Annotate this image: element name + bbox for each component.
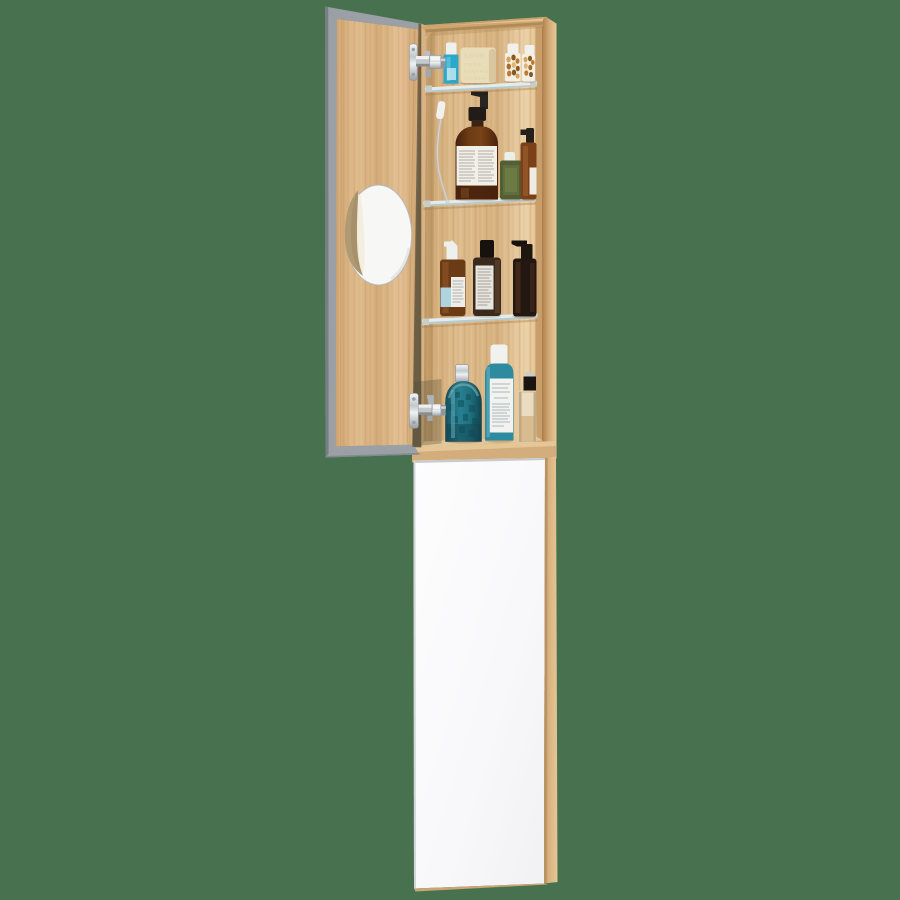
svg-text:LIQUIDE: LIQUIDE xyxy=(464,62,482,67)
svg-text:SAVON: SAVON xyxy=(464,54,485,60)
svg-text:EXTRA PUR: EXTRA PUR xyxy=(464,69,489,74)
svg-text:72% OLIVE: 72% OLIVE xyxy=(464,76,487,81)
